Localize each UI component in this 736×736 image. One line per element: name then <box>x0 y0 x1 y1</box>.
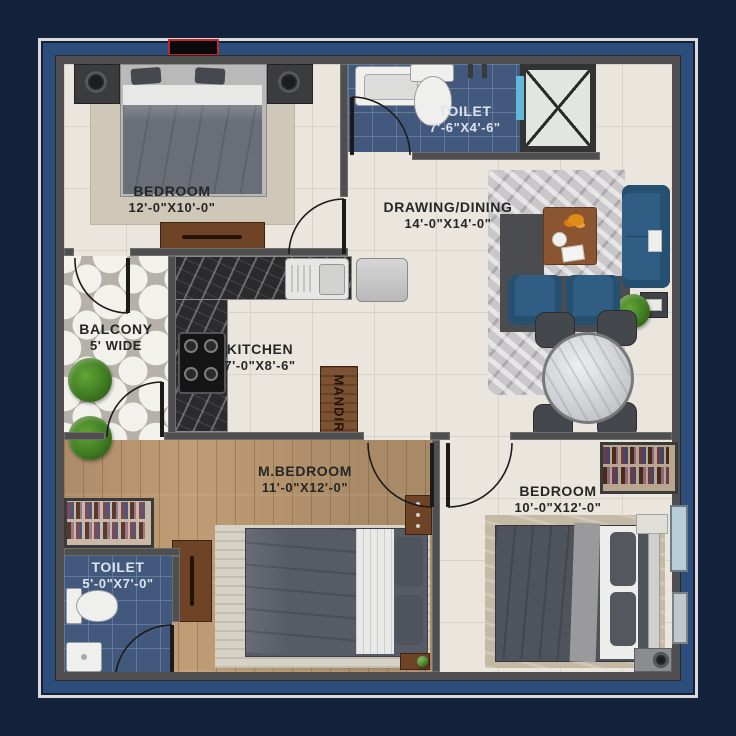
door-bedroom-top <box>289 199 344 254</box>
wall <box>168 256 176 440</box>
room-name: DRAWING/DINING <box>358 198 538 216</box>
nightstand <box>400 653 430 670</box>
desk-drawers <box>405 495 432 535</box>
room-label-toilet-bottom: TOILET 5'-0"X7'-0" <box>64 558 172 593</box>
sink-basin <box>319 264 345 295</box>
room-dims: 7'-6"X4'-6" <box>380 120 550 137</box>
wall <box>340 64 348 197</box>
dresser-handle <box>182 235 242 239</box>
wardrobe-clothes <box>67 522 145 539</box>
wc-bowl <box>76 590 118 622</box>
bed-sheet <box>123 85 262 107</box>
pillow <box>195 67 226 85</box>
room-label-kitchen: KITCHEN 7'-0"X8'-6" <box>200 340 320 375</box>
room-name: KITCHEN <box>200 340 320 358</box>
table-lamp-icon <box>278 71 300 93</box>
refrigerator <box>356 258 408 302</box>
floor-base-tiles: MANDIR <box>64 64 672 672</box>
wardrobe-clothes <box>603 447 669 464</box>
wardrobe <box>64 498 154 548</box>
bed-blanket <box>123 105 262 194</box>
plant-icon <box>417 656 428 667</box>
wall <box>510 432 672 440</box>
headboard <box>648 524 660 665</box>
tap-icon <box>482 64 487 78</box>
dresser-handle <box>190 556 194 606</box>
plant-icon <box>68 358 112 402</box>
sink-drainboard <box>291 265 315 292</box>
bed-double <box>495 525 659 662</box>
pillow <box>395 595 423 645</box>
wall <box>64 432 105 440</box>
floor-plan: MANDIR <box>56 56 680 680</box>
room-name: TOILET <box>64 558 172 576</box>
mandir-label: MANDIR <box>332 374 347 432</box>
room-label-balcony: BALCONY 5' WIDE <box>64 320 168 355</box>
bed-sheet <box>356 529 394 654</box>
plate <box>552 232 567 247</box>
wall <box>64 248 74 256</box>
washbasin <box>66 642 102 672</box>
drawer-knob <box>416 524 420 528</box>
tap-icon <box>468 64 473 78</box>
room-dims: 5'-0"X7'-0" <box>64 576 172 593</box>
wall <box>172 556 180 622</box>
room-label-bedroom-top: BEDROOM 12'-0"X10'-0" <box>82 182 262 217</box>
bed-blanket <box>496 526 572 659</box>
room-dims: 7'-0"X8'-6" <box>200 358 320 375</box>
sliding-door-right <box>670 505 688 572</box>
pillow <box>130 67 161 85</box>
entry-marker <box>168 39 219 56</box>
sofa <box>622 185 670 288</box>
wall <box>64 548 180 556</box>
room-name: M.BEDROOM <box>205 462 405 480</box>
table-lamp-icon <box>653 652 669 668</box>
table-lamp-icon <box>85 71 107 93</box>
room-dims: 12'-0"X10'-0" <box>82 200 262 217</box>
wall <box>164 432 364 440</box>
room-dims: 5' WIDE <box>64 338 168 355</box>
mandir-cabinet: MANDIR <box>320 366 358 440</box>
room-label-bedroom-right: BEDROOM 10'-0"X12'-0" <box>458 482 658 517</box>
room-name: BALCONY <box>64 320 168 338</box>
kitchen-sink <box>285 258 349 300</box>
burner-icon <box>184 339 198 353</box>
room-label-toilet-top: TOILET 7'-6"X4'-6" <box>380 102 550 137</box>
wall <box>430 432 450 440</box>
room-dims: 11'-0"X12'-0" <box>205 480 405 497</box>
wall <box>412 152 600 160</box>
wall <box>432 440 440 672</box>
room-dims: 10'-0"X12'-0" <box>458 500 658 517</box>
room-label-master-bedroom: M.BEDROOM 11'-0"X12'-0" <box>205 462 405 497</box>
room-name: TOILET <box>380 102 550 120</box>
pillow <box>395 537 423 587</box>
bed-blanket <box>246 529 356 654</box>
wardrobe-clothes <box>67 502 145 519</box>
bed-throw <box>570 523 601 663</box>
magazine <box>648 230 662 252</box>
coffee-table <box>543 207 597 265</box>
nightstand <box>634 648 672 672</box>
floor-plan-canvas: MANDIR <box>0 0 736 736</box>
pillow <box>610 592 636 646</box>
room-name: BEDROOM <box>458 482 658 500</box>
dining-table <box>542 332 634 424</box>
pillow <box>610 532 636 586</box>
room-dims: 14'-0"X14'-0" <box>358 216 538 233</box>
drawer-knob <box>416 502 420 506</box>
room-label-drawing-dining: DRAWING/DINING 14'-0"X14'-0" <box>358 198 538 233</box>
tray <box>561 245 585 263</box>
wall <box>130 248 348 256</box>
burner-icon <box>184 367 198 381</box>
bed-double <box>120 64 267 197</box>
bed-double <box>245 528 428 657</box>
fruit-bowl <box>568 214 584 226</box>
room-name: BEDROOM <box>82 182 262 200</box>
drawer-knob <box>416 513 420 517</box>
basin-drain <box>81 654 87 660</box>
window-right <box>672 592 688 644</box>
